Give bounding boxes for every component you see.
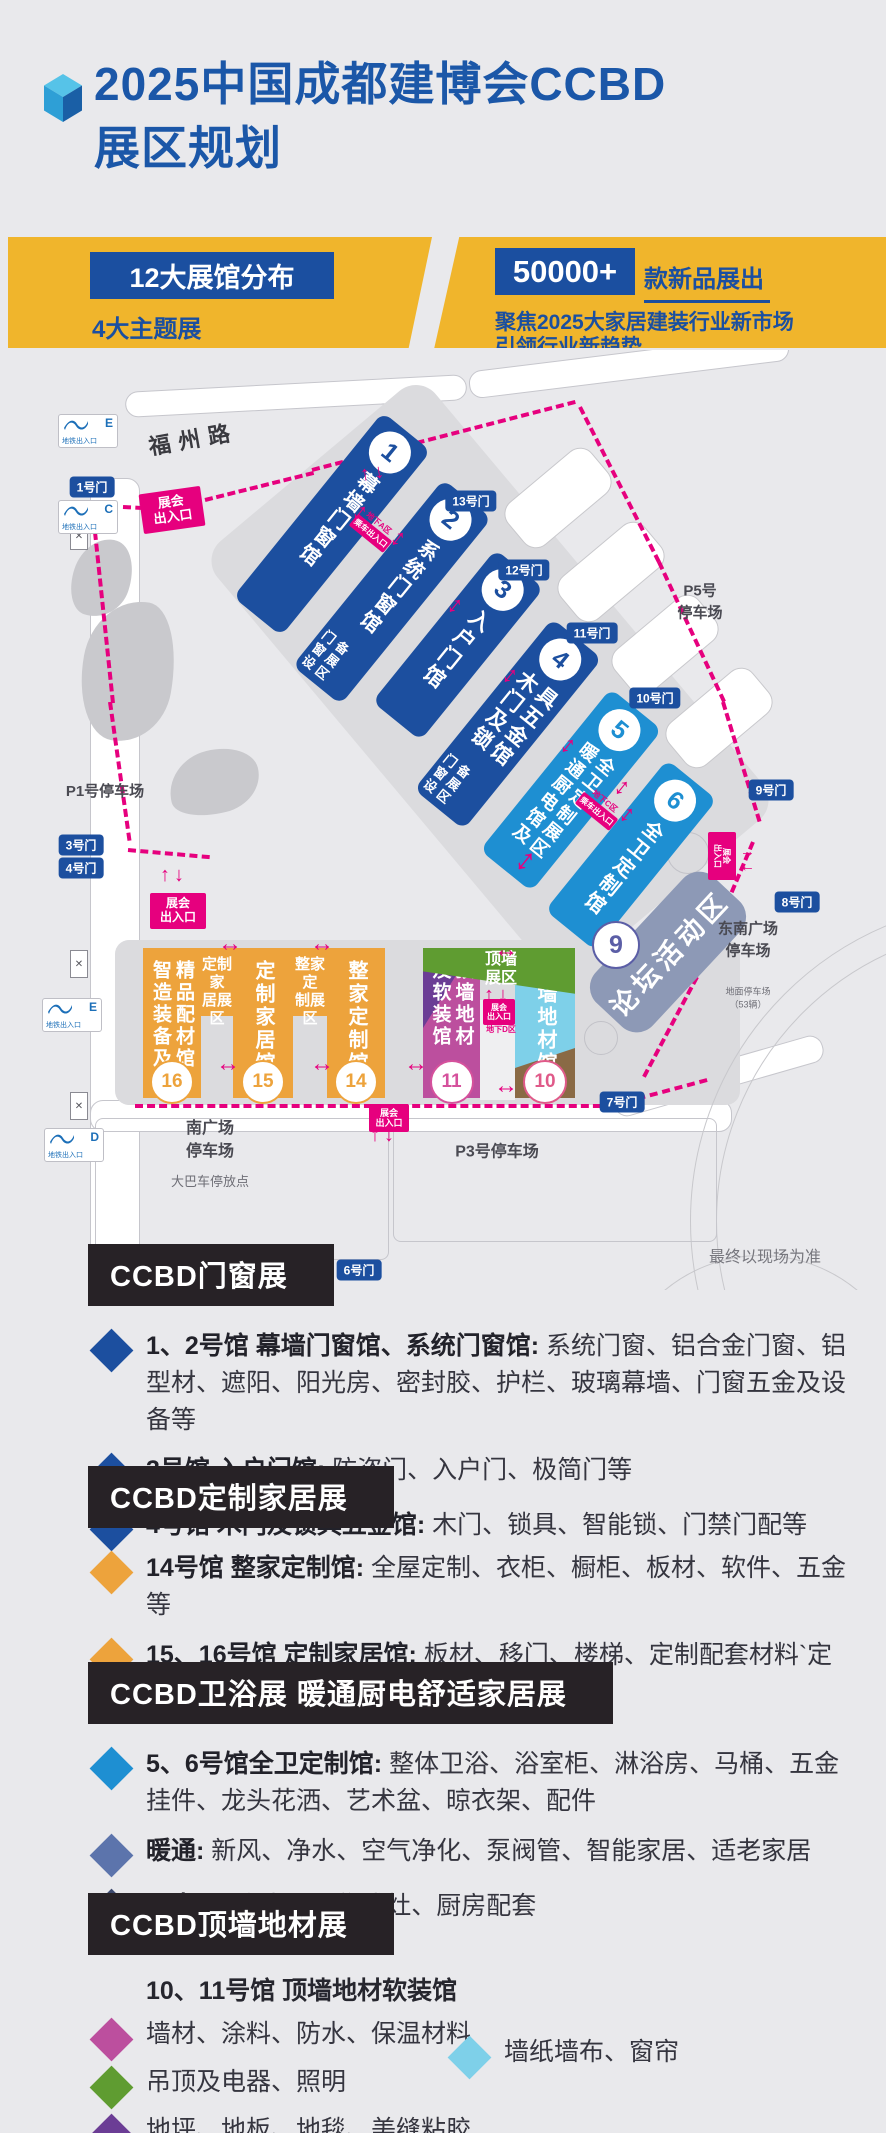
title-line-2: 展区规划	[94, 116, 666, 180]
diamond-icon	[88, 2115, 134, 2133]
crossing-icon-2: ✕	[70, 950, 88, 978]
roundabout-2	[584, 1021, 618, 1055]
diamond-shape	[89, 1746, 133, 1790]
gate-7号门: 7号门	[600, 1092, 645, 1113]
legend-section-4: CCBD顶墙地材展10、11号馆 顶墙地材软装馆墙材、涂料、防水、保温材料吊顶及…	[0, 1893, 886, 2133]
metro-entrance-label: 地铁出入口	[62, 522, 97, 532]
hall-15-name: 定制家居馆	[233, 960, 293, 1075]
metro-entrance-3: E地铁出入口	[42, 998, 102, 1032]
legend-section-title: CCBD门窗展	[88, 1244, 334, 1306]
road-name-label: 福州路	[146, 414, 240, 461]
page-title: 2025中国成都建博会CCBD 展区规划	[94, 52, 666, 180]
hall-16-number: 16	[150, 1060, 194, 1104]
entrance-arrows-1: ↑↓	[359, 460, 386, 486]
hall-16: 智造装备及精品配材馆16	[143, 948, 201, 1098]
bridge-label-2: 整家定 制展区	[293, 948, 327, 1016]
legend-item-text: 暖通: 新风、净水、空气净化、泵阀管、智能家居、适老家居	[146, 1833, 854, 1870]
bridge-label-1: 定制家 居展区	[201, 948, 233, 1016]
site-map: ✕✕✕1幕墙门窗馆2系统门窗馆门窗设备展区3入户门馆4木门及锁具五金馆门窗设备展…	[0, 350, 886, 1290]
parking-label-1: P1号停车场	[66, 781, 144, 803]
legend-item-text: 墙纸墙布、窗帘	[504, 2035, 804, 2069]
arrow-icon: ↓	[384, 1124, 394, 1147]
legend-item-3-2: 暖通: 新风、净水、空气净化、泵阀管、智能家居、适老家居	[88, 1833, 886, 1875]
legend-item-text: 1、2号馆 幕墙门窗馆、系统门窗馆: 系统门窗、铝合金门窗、铝型材、遮阳、阳光房…	[146, 1328, 854, 1439]
gate-1号门: 1号门	[70, 477, 115, 498]
legend-section-title: CCBD定制家居展	[88, 1466, 394, 1528]
arrow-icon: ↑	[359, 462, 372, 486]
metro-wave-icon	[63, 418, 89, 431]
entrance-arrows-4: ↑↓	[484, 984, 508, 1007]
diamond-shape	[89, 1550, 133, 1594]
arrow-icon: ↑	[484, 984, 494, 1007]
banner-left: 12大展馆分布 4大主题展	[8, 237, 432, 348]
diamond-icon	[88, 2067, 134, 2107]
hall-14-name: 整家定制馆	[327, 960, 385, 1075]
flow-arrow-h-6: ↔	[310, 930, 334, 958]
halls-count-label: 12大展馆分布	[129, 256, 294, 295]
metro-entrance-label: 地铁出入口	[46, 1020, 81, 1030]
legend-item-3-1: 5、6号馆全卫定制馆: 整体卫浴、浴室柜、淋浴房、马桶、五金挂件、龙头花洒、艺术…	[88, 1746, 886, 1820]
diamond-icon	[88, 1748, 134, 1788]
diamond-shape	[89, 2113, 133, 2133]
legend-item-1-1: 1、2号馆 幕墙门窗馆、系统门窗馆: 系统门窗、铝合金门窗、铝型材、遮阳、阳光房…	[88, 1328, 886, 1439]
metro-letter: E	[105, 416, 113, 430]
hall-16-name: 智造装备及精品配材馆	[143, 960, 201, 1070]
legend-section-title: CCBD顶墙地材展	[88, 1893, 394, 1955]
diamond-icon	[88, 1330, 134, 1370]
gate-9号门: 9号门	[749, 780, 794, 801]
legend-item-4-3: 地坪、地板、地毯、美缝粘胶	[88, 2113, 886, 2133]
hall-11-number: 11	[430, 1060, 474, 1104]
expo-entrance-label: 展会	[722, 848, 731, 864]
theme-count-label: 4大主题展	[92, 309, 201, 344]
road-fuzhou-2	[467, 350, 790, 400]
expo-entrance-label: 出入口	[153, 507, 194, 527]
route-dash-12	[128, 848, 210, 859]
crossing-icon-3: ✕	[70, 1092, 88, 1120]
expo-entrance-1: 展会出入口	[139, 486, 206, 534]
arrow-icon: ↑	[160, 864, 170, 887]
parking-label-3: 东南广场 停车场	[718, 918, 778, 962]
diamond-icon	[88, 2019, 134, 2059]
forum-number: 9	[592, 921, 640, 969]
p3-outline	[393, 1118, 717, 1242]
expo-entrance-5: 展会出入口	[708, 832, 736, 880]
hall-15: 定制家居馆15	[233, 948, 293, 1098]
legend-item-detail: 墙材、涂料、防水、保温材料	[146, 2020, 471, 2048]
green-blob-3	[162, 740, 267, 824]
entrance-arrows-2: ↑↓	[160, 864, 184, 887]
legend-item-label: 暖通:	[146, 1837, 211, 1865]
arrow-icon: ↓	[498, 984, 508, 1007]
legend-item-text: 地坪、地板、地毯、美缝粘胶	[146, 2113, 854, 2133]
parking-sublabel-4: 大巴车停放点	[171, 1173, 249, 1191]
products-count-label: 50000+	[513, 254, 617, 290]
diamond-icon	[88, 1835, 134, 1875]
legend-item-text: 5、6号馆全卫定制馆: 整体卫浴、浴室柜、淋浴房、马桶、五金挂件、龙头花洒、艺术…	[146, 1746, 854, 1820]
gate-4号门: 4号门	[59, 858, 104, 879]
hall-10-number: 10	[523, 1060, 567, 1104]
diamond-shape	[89, 2065, 133, 2109]
diamond-icon	[446, 2037, 492, 2077]
legend-item-detail: 地坪、地板、地毯、美缝粘胶	[146, 2116, 471, 2133]
flow-arrow-h-7: ↔	[494, 936, 518, 964]
products-suffix-label: 款新品展出	[644, 259, 770, 303]
expo-entrance-label: 出入口	[713, 844, 722, 868]
metro-entrance-2: C地铁出入口	[58, 500, 118, 534]
expo-entrance-label: 出入口	[487, 1012, 511, 1021]
legend-item-detail: 墙纸墙布、窗帘	[504, 2038, 679, 2066]
hall-16-name-col: 精品配材馆	[174, 960, 193, 1070]
legend-item-detail: 吊顶及电器、照明	[146, 2068, 346, 2096]
cube-icon	[44, 74, 82, 122]
hall-15-number: 15	[241, 1060, 285, 1104]
entrance-arrows-3: ↑↓	[370, 1124, 394, 1147]
hall-14: 整家定制馆14	[327, 948, 385, 1098]
halls-count-badge: 12大展馆分布	[90, 252, 334, 299]
legend-item-text: 14号馆 整家定制馆: 全屋定制、衣柜、橱柜、板材、软件、五金等	[146, 1550, 854, 1624]
diamond-shape	[447, 2035, 491, 2079]
arrow-icon: →	[740, 844, 755, 859]
metro-letter: E	[89, 1000, 97, 1014]
gate-12号门: 12号门	[498, 560, 549, 581]
legend-item-label: 1、2号馆 幕墙门窗馆、系统门窗馆:	[146, 1332, 546, 1360]
arrow-icon: ↑	[370, 1124, 380, 1147]
header: 2025中国成都建博会CCBD 展区规划	[0, 0, 886, 237]
legend-item-label: 14号馆 整家定制馆:	[146, 1554, 371, 1582]
arrow-icon: ↓	[174, 864, 184, 887]
metro-entrance-label: 地铁出入口	[48, 1150, 83, 1160]
expo-poster: 2025中国成都建博会CCBD 展区规划 12大展馆分布 4大主题展 50000…	[0, 0, 886, 2133]
flow-arrow-h-3: ↔	[404, 1050, 428, 1078]
diamond-shape	[89, 2017, 133, 2061]
parking-sublabel-3: 地面停车场 （53辆）	[725, 985, 770, 1010]
metro-letter: C	[104, 502, 113, 516]
parking-label-4: 南广场 停车场	[186, 1117, 234, 1163]
products-count-badge: 50000+	[495, 248, 635, 295]
gate-8号门: 8号门	[775, 892, 820, 913]
parking-label-5: P3号停车场	[455, 1140, 539, 1163]
flow-arrow-h-2: ↔	[310, 1050, 334, 1078]
legend-item-side: 墙纸墙布、窗帘	[446, 2035, 804, 2077]
parking-label-2: P5号 停车场	[677, 580, 722, 624]
expo-entrance-label: 出入口	[160, 911, 196, 925]
diamond-icon	[88, 1552, 134, 1592]
legend-subheader: 10、11号馆 顶墙地材软装馆	[146, 1971, 886, 2007]
hall-14-number: 14	[334, 1060, 378, 1104]
gate-10号门: 10号门	[629, 688, 680, 709]
metro-letter: D	[90, 1130, 99, 1144]
flow-arrow-h-4: ↔	[494, 1072, 518, 1100]
green-blob-2	[70, 593, 185, 749]
entrance-arrows-side: →←	[740, 844, 755, 874]
metro-wave-icon	[49, 1132, 75, 1145]
metro-wave-icon	[47, 1002, 73, 1015]
metro-entrance-4: D地铁出入口	[44, 1128, 104, 1162]
diamond-shape	[89, 1833, 133, 1877]
underground-zone-label: 地下D区	[479, 1024, 523, 1035]
metro-wave-icon	[63, 504, 89, 517]
arrow-icon: ←	[740, 859, 755, 874]
legend-item-detail: 新风、净水、空气净化、泵阀管、智能家居、适老家居	[211, 1837, 811, 1865]
metro-entrance-label: 地铁出入口	[62, 436, 97, 446]
underground-access-3: 地下D区	[479, 1024, 523, 1035]
hall-14-name-col: 整家定制馆	[346, 960, 366, 1075]
legend-item-2-1: 14号馆 整家定制馆: 全屋定制、衣柜、橱柜、板材、软件、五金等	[88, 1550, 886, 1624]
expo-entrance-2: 展会出入口	[150, 893, 206, 929]
expo-entrance-label: 展会	[380, 1108, 398, 1118]
flow-arrow-h-1: ↔	[216, 1050, 240, 1078]
gate-3号门: 3号门	[59, 835, 104, 856]
hall-15-name-col: 定制家居馆	[253, 960, 273, 1075]
banner-right: 50000+ 款新品展出 聚焦2025大家居建装行业新市场 引领行业新趋势	[432, 237, 886, 348]
metro-entrance-1: E地铁出入口	[58, 414, 118, 448]
flow-arrow-h-5: ↔	[218, 930, 242, 958]
expo-entrance-label: 展会	[166, 897, 190, 911]
gate-13号门: 13号门	[445, 491, 496, 512]
diamond-shape	[89, 1328, 133, 1372]
legend-section-title: CCBD卫浴展 暖通厨电舒适家居展	[88, 1662, 613, 1724]
hall-16-name-col: 智造装备及	[151, 960, 170, 1070]
legend-item-label: 5、6号馆全卫定制馆:	[146, 1750, 389, 1778]
title-line-1: 2025中国成都建博会CCBD	[94, 52, 666, 116]
gate-11号门: 11号门	[567, 623, 618, 644]
